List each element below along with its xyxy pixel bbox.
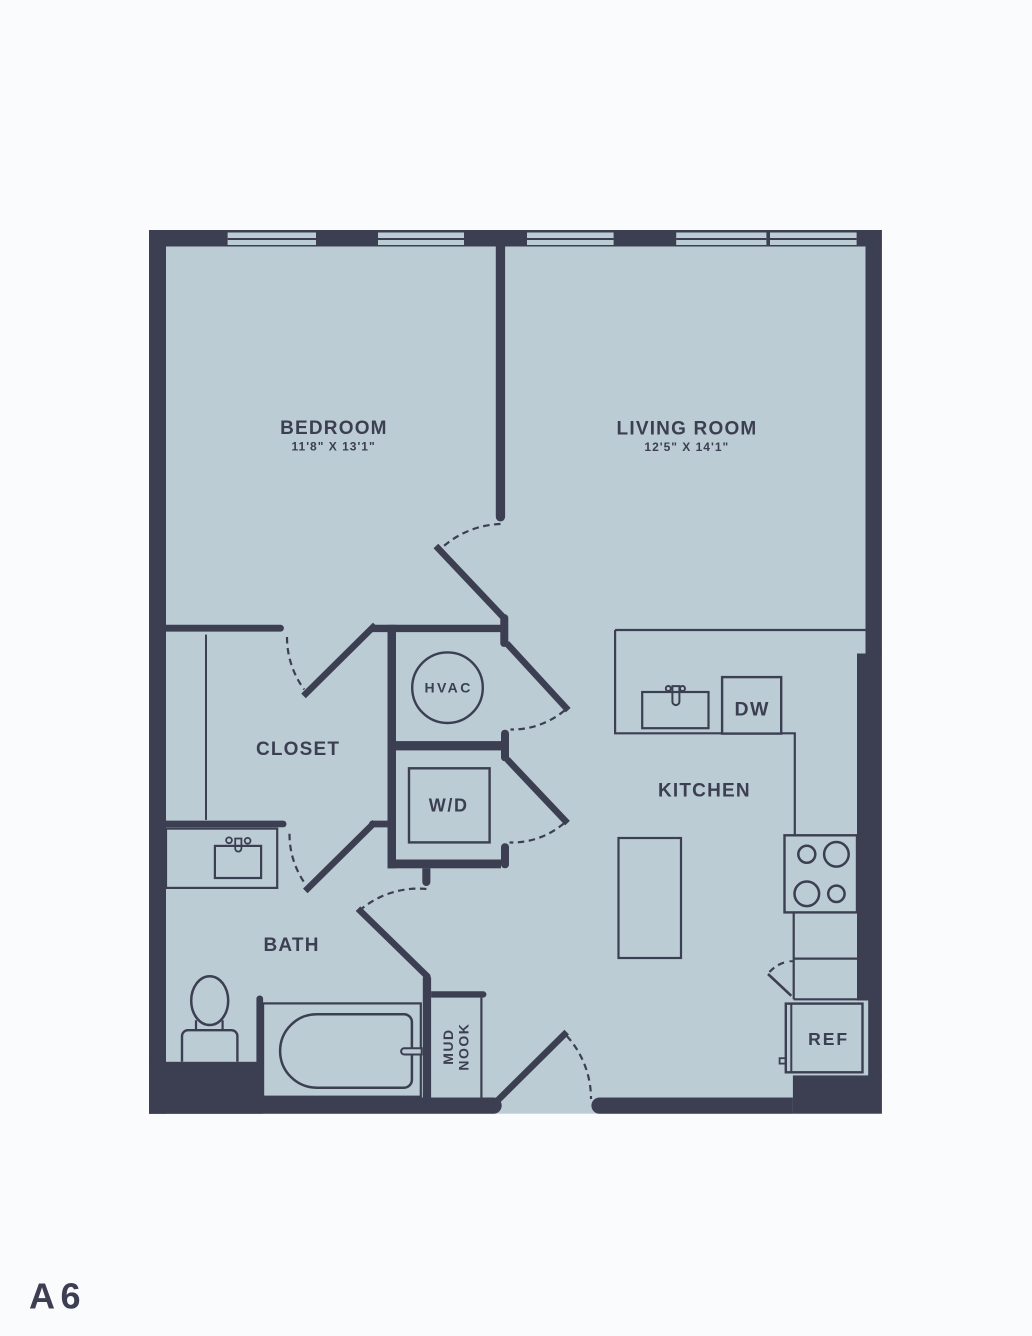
- svg-text:12'5" X 14'1": 12'5" X 14'1": [644, 440, 729, 454]
- svg-text:DW: DW: [734, 699, 770, 721]
- svg-text:CLOSET: CLOSET: [256, 739, 340, 760]
- svg-text:MUDNOOK: MUDNOOK: [440, 1023, 471, 1071]
- svg-text:A6: A6: [29, 1276, 86, 1317]
- svg-text:LIVING ROOM: LIVING ROOM: [617, 419, 758, 440]
- svg-text:W/D: W/D: [429, 796, 469, 816]
- svg-text:HVAC: HVAC: [424, 680, 472, 696]
- svg-text:BEDROOM: BEDROOM: [280, 418, 388, 439]
- svg-text:BATH: BATH: [264, 935, 320, 956]
- svg-text:11'8" X 13'1": 11'8" X 13'1": [292, 440, 376, 454]
- svg-text:REF: REF: [808, 1029, 849, 1049]
- svg-text:KITCHEN: KITCHEN: [658, 781, 751, 802]
